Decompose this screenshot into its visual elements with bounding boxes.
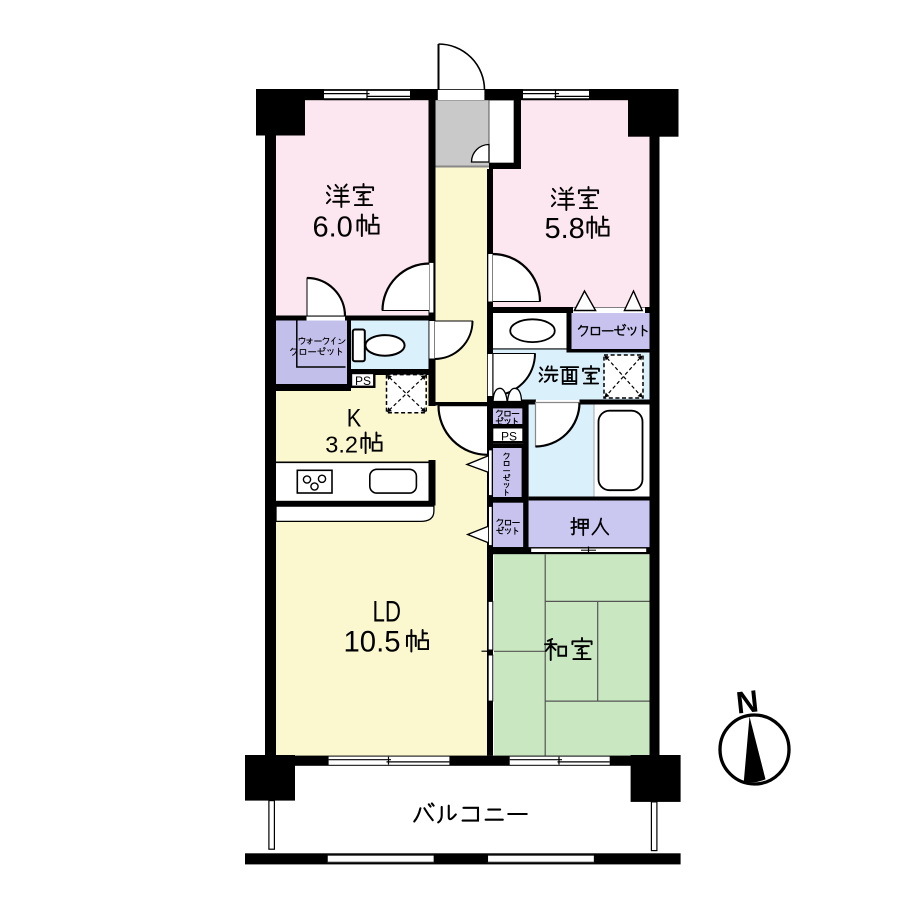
svg-text:5.8: 5.8 <box>545 213 585 245</box>
svg-text:PS: PS <box>355 374 371 388</box>
svg-text:6.0: 6.0 <box>313 212 353 244</box>
svg-text:10.5: 10.5 <box>344 626 401 659</box>
svg-text:PS: PS <box>501 430 517 444</box>
svg-text:LD: LD <box>373 596 402 629</box>
svg-text:N: N <box>734 683 760 720</box>
svg-text:3.2: 3.2 <box>325 432 358 458</box>
svg-text:K: K <box>347 405 362 433</box>
